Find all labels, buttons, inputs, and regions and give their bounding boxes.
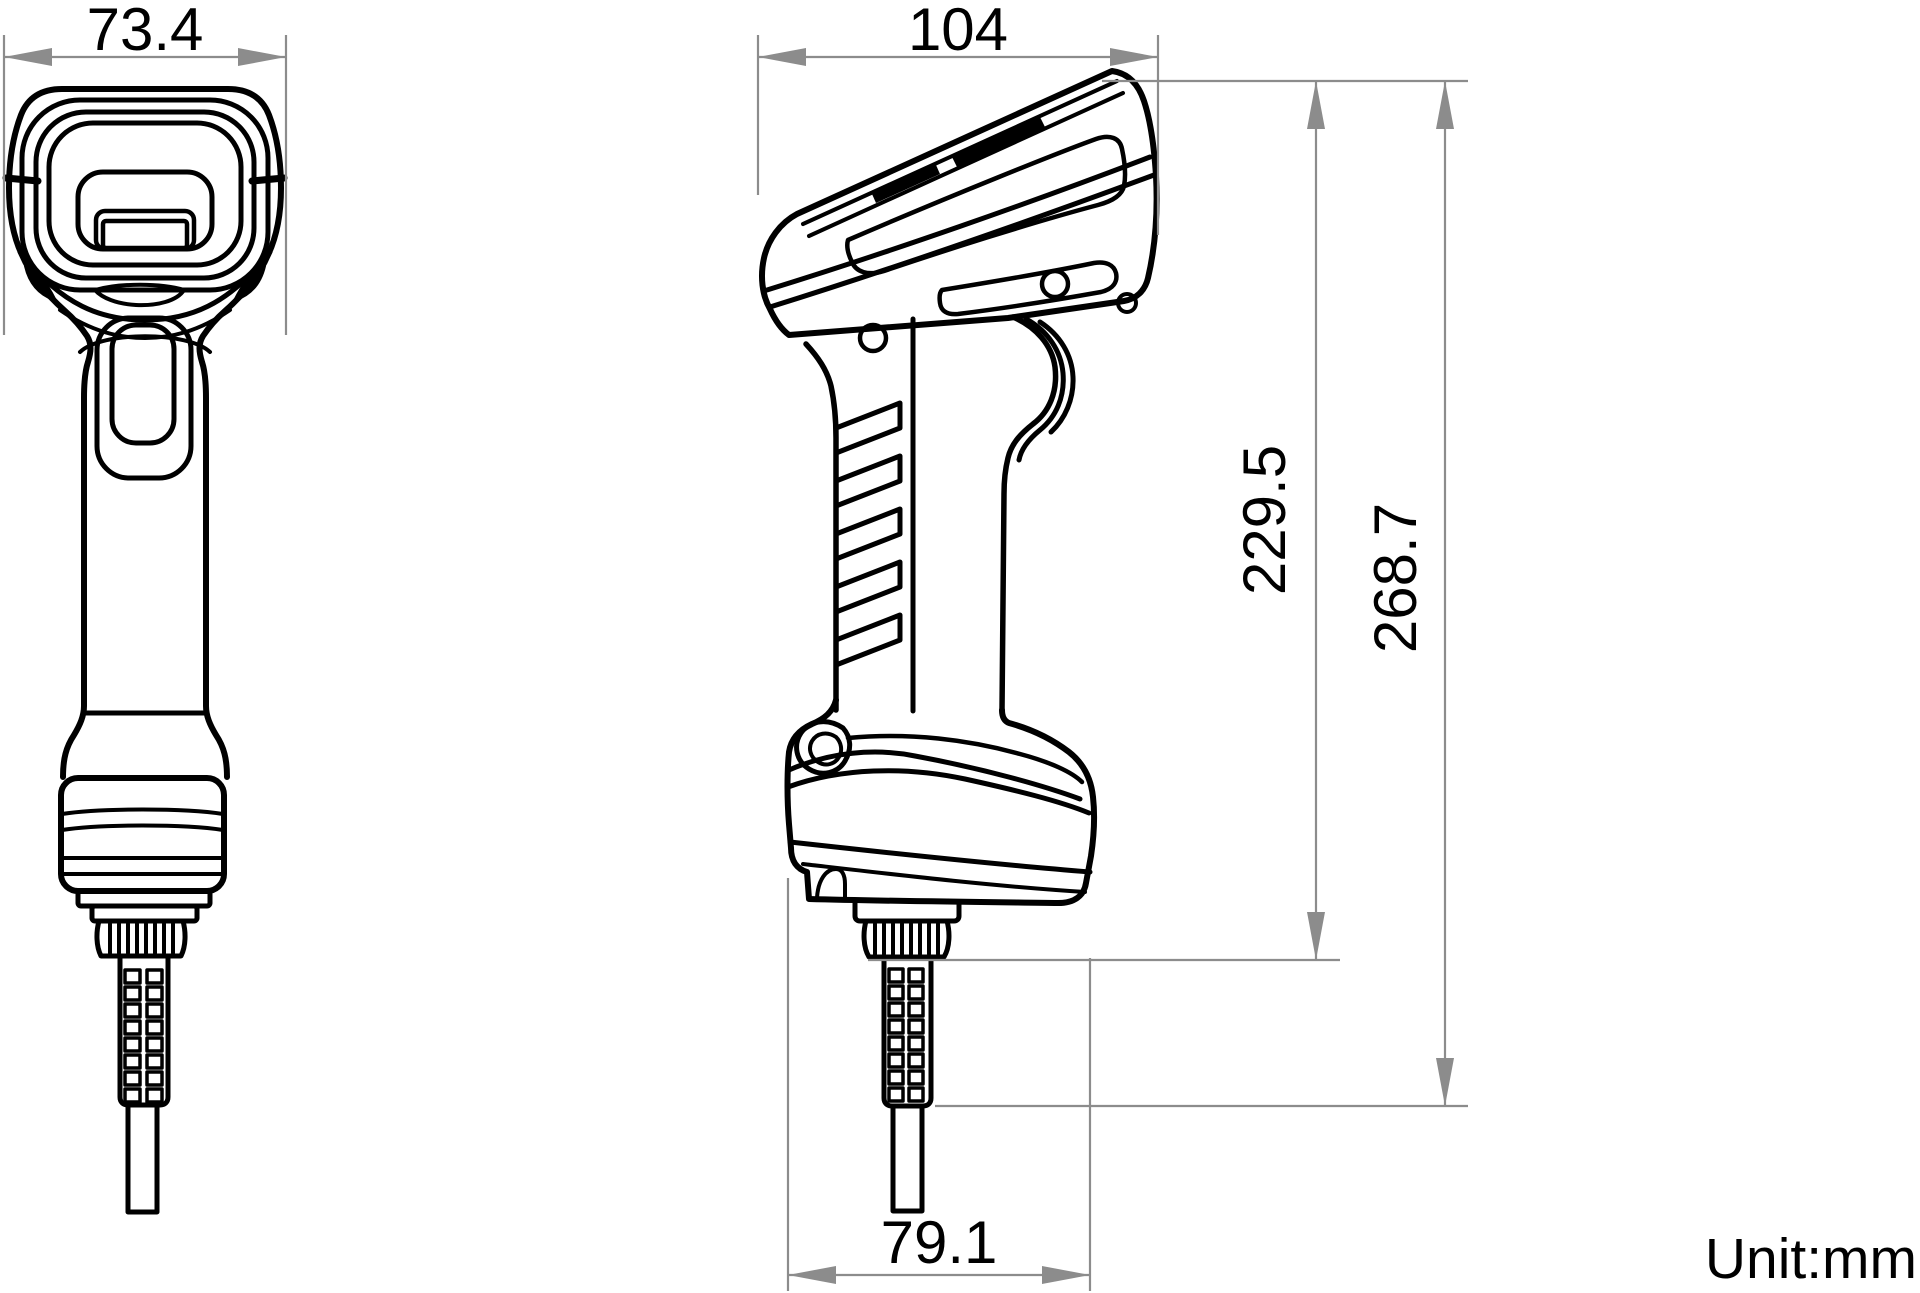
head-ring-middle <box>36 112 254 278</box>
nut-ribs <box>875 924 938 954</box>
technical-drawing: 73.4 104 229.5 268.7 <box>0 0 1920 1293</box>
arrowhead <box>1042 1266 1090 1284</box>
dim-side-width-value: 104 <box>908 0 1008 63</box>
arrowhead <box>1307 81 1325 129</box>
head-ring-outer <box>22 100 268 290</box>
nut-ribs <box>110 924 173 953</box>
unit-label: Unit:mm <box>1705 1227 1917 1291</box>
arrowhead <box>758 48 806 66</box>
arrowhead <box>1307 912 1325 960</box>
cover-seam-1 <box>767 157 1150 290</box>
scan-engine-outer <box>96 211 194 249</box>
dim-base-width-value: 79.1 <box>881 1209 998 1276</box>
dim-body-height-value: 229.5 <box>1231 445 1298 595</box>
strain-relief-grid <box>889 969 923 1101</box>
arrowhead <box>4 48 52 66</box>
arrowhead <box>1436 1058 1454 1106</box>
dim-total-height: 268.7 <box>935 81 1468 1106</box>
connector-step <box>855 903 959 921</box>
side-view <box>762 71 1157 1211</box>
base-seam-1 <box>62 810 223 815</box>
arrowhead <box>238 48 286 66</box>
grip-ribs <box>836 403 900 665</box>
scanner-dimension-diagram: 73.4 104 229.5 268.7 <box>0 0 1920 1293</box>
front-view <box>6 89 284 1212</box>
base-swoosh <box>848 736 1082 782</box>
dim-side-width: 104 <box>758 0 1158 235</box>
cable <box>893 1106 922 1211</box>
base-seam-2 <box>62 826 223 831</box>
arrowhead <box>1110 48 1158 66</box>
base-foot-arch <box>817 869 845 898</box>
handle-back-edge <box>1002 317 1056 711</box>
top-seam-2 <box>809 93 1123 236</box>
side-clamp-left <box>6 178 38 181</box>
side-clamp-right <box>252 178 284 181</box>
dim-total-height-value: 268.7 <box>1362 503 1429 653</box>
top-seam-1 <box>803 81 1117 224</box>
arrowhead <box>788 1266 836 1284</box>
dim-front-width-value: 73.4 <box>87 0 204 63</box>
base-ridge-2 <box>788 771 1089 813</box>
strain-relief-grid <box>125 970 162 1102</box>
arrowhead <box>1436 81 1454 129</box>
grip-strip-2 <box>872 165 940 203</box>
cable <box>128 1105 157 1212</box>
scan-engine-inner <box>103 221 187 248</box>
handle-front-edge <box>806 344 836 710</box>
trigger-button <box>112 325 174 443</box>
screw-hole <box>1042 271 1068 297</box>
